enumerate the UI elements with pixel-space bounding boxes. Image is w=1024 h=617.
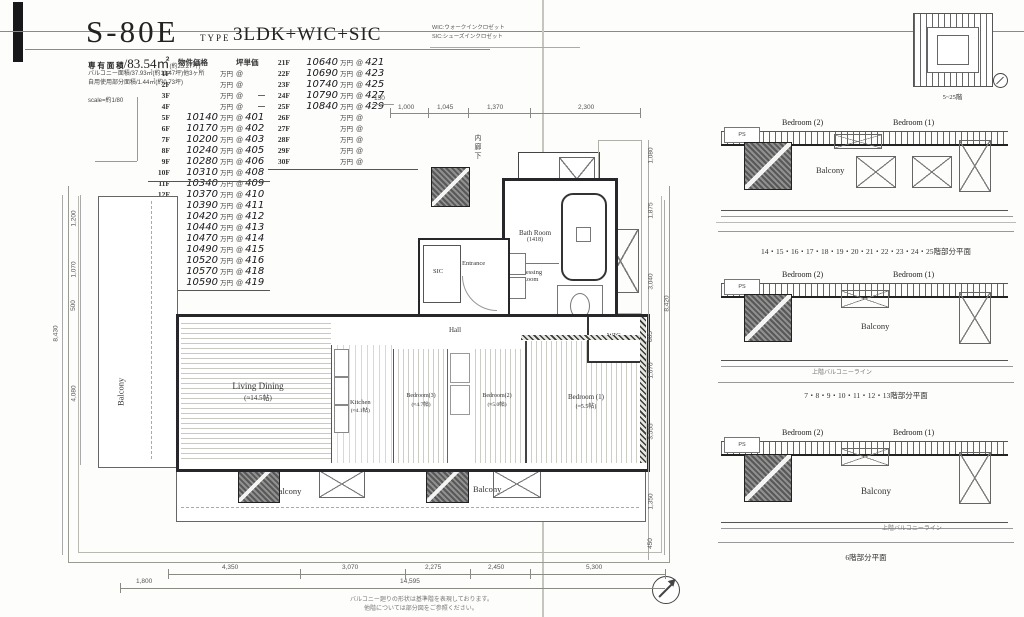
tsubo-value: 408 (245, 167, 264, 178)
column-pillar (744, 142, 792, 190)
price-row: 30F万円@ (268, 156, 384, 167)
price-value: 10840 (294, 101, 338, 112)
floor-label: 23F (268, 80, 290, 89)
legend: WIC:ウォークインクロゼット SIC:シューズインクロゼット (432, 24, 505, 42)
dim-tick (168, 569, 169, 579)
compass-icon (993, 73, 1008, 88)
at-mark: @ (356, 126, 363, 133)
bath-block: Bath Room (1418) Dressing Room (502, 178, 618, 336)
dim-line (80, 195, 81, 465)
dim-label: 1,080 (648, 147, 655, 163)
partial-plan-14-25f: Bedroom (2) Bedroom (1) PS Balcony (716, 118, 1016, 240)
dim-tick (530, 108, 531, 118)
price-unit-suffix: 万円 (220, 167, 233, 177)
dim-label: 1,045 (437, 104, 453, 111)
price-unit-suffix: 万円 (340, 57, 353, 67)
bathtub-icon (561, 193, 607, 281)
dim-label: 3,040 (648, 273, 655, 289)
closet-strip (447, 349, 473, 463)
dim-line (62, 195, 63, 555)
legend-underline (430, 47, 580, 48)
legend-sic: SIC:シューズインクロゼット (432, 33, 505, 42)
louver-box-icon (841, 448, 889, 466)
caption-6f: 6階部分平面 (716, 552, 1016, 563)
floor-label: 7F (148, 135, 170, 144)
dim-line (120, 588, 665, 589)
at-mark: @ (356, 159, 363, 166)
at-mark: @ (236, 115, 243, 122)
title-underline (25, 49, 490, 50)
living-dining-label: Living Dining (≈14.5帖) (203, 381, 313, 402)
dim-label: 450 (647, 538, 654, 549)
price-value: 10790 (294, 90, 338, 101)
dim-label: 3,070 (342, 564, 358, 571)
shaft-x-icon (959, 292, 991, 344)
price-value: 10240 (174, 145, 218, 156)
floor-label: 9F (148, 157, 170, 166)
floor-label: 5F (148, 113, 170, 122)
footnote: バルコニー廻りの形状は基準階を表現しております。 他階については部分図をご参照く… (350, 596, 493, 614)
keyplan-caption: 5~25階 (925, 91, 980, 101)
dim-tick (640, 108, 641, 118)
dim-label: 14,595 (400, 578, 420, 585)
kitchen-counter-icon (334, 349, 349, 377)
kitchen-stove-icon (334, 405, 349, 433)
shaft-x-icon (959, 452, 991, 504)
price-unit-suffix: 万円 (220, 68, 233, 78)
price-unit-suffix: 万円 (220, 134, 233, 144)
planter-box-icon (493, 470, 541, 498)
bedroom2-label: Bedroom(2) (≈5.0帖) (472, 393, 522, 408)
louver-box-icon (841, 290, 889, 308)
ps-box: PS (724, 279, 760, 295)
price-unit-suffix: 万円 (220, 145, 233, 155)
bedroom3-room: Bedroom(3) (≈4.7帖) (393, 349, 448, 463)
dim-tick (530, 569, 531, 579)
dim-tick (665, 569, 666, 579)
price-unit-suffix: 万円 (340, 123, 353, 133)
hall-label: Hall (449, 326, 461, 334)
price-unit-suffix: 万円 (220, 101, 233, 111)
at-mark: @ (356, 60, 363, 67)
dim-label: 1,350 (648, 493, 655, 509)
legend-wic: WIC:ウォークインクロゼット (432, 24, 505, 33)
leader-line-v (137, 97, 138, 161)
dim-label: 1,000 (398, 104, 414, 111)
balcony-edge-line (716, 222, 1016, 223)
dim-label: 8,430 (53, 325, 60, 341)
ps-box: PS (724, 127, 760, 143)
leader-line-h (95, 161, 137, 162)
ps-box: PS (724, 437, 760, 453)
balcony-label: Balcony (861, 486, 891, 496)
price-unit-suffix: 万円 (340, 101, 353, 111)
louver-box-icon (834, 134, 882, 149)
wall-hatch (640, 317, 646, 463)
door-swing-icon (462, 276, 497, 311)
caption-7-13f: 7・8・9・10・11・12・13階部分平面 (716, 390, 1016, 401)
price-value: 10170 (174, 123, 218, 134)
price-row: 25F10840万円@429 (268, 101, 384, 112)
living-dining-room: Living Dining (≈14.5帖) (181, 319, 331, 463)
price-unit-suffix: 万円 (220, 123, 233, 133)
floor-label: 3F (148, 91, 170, 100)
floorplan-sheet: S-80E TYPE 3LDK+WIC+SIC WIC:ウォークインクロゼット … (0, 0, 1024, 617)
price-value: 10640 (294, 57, 338, 68)
at-mark: @ (356, 93, 363, 100)
tsubo-value: 401 (245, 112, 264, 123)
balcony-left-dash (151, 201, 152, 459)
balcony-edge-line (721, 210, 1008, 211)
vanity-icon (508, 253, 526, 275)
compass-icon (652, 576, 680, 604)
floor-label: 21F (268, 58, 290, 67)
price-row: 21F10640万円@421 (268, 57, 384, 68)
at-mark: @ (356, 137, 363, 144)
at-mark: @ (356, 148, 363, 155)
entrance-block: SIC Entrance (418, 238, 510, 320)
at-mark: @ (356, 71, 363, 78)
scale-line: scale=約1/80 (88, 95, 123, 104)
floor-label: 22F (268, 69, 290, 78)
bedroom2-label: Bedroom (2) (782, 118, 823, 127)
entrance-label: Entrance (462, 260, 485, 267)
tsubo-value: 406 (245, 156, 264, 167)
floor-label: 26F (268, 113, 290, 122)
price-unit-suffix: 万円 (220, 79, 233, 89)
price-unit-suffix: 万円 (220, 112, 233, 122)
price-value: 10310 (174, 167, 218, 178)
balcony-edge-line (721, 522, 1008, 523)
dash-25f (258, 106, 265, 107)
price-row: 5F10140万円@401 (148, 112, 264, 123)
kitchen-room: Kitchen (≈4.1帖) (331, 345, 394, 463)
price-unit-suffix: 万円 (220, 90, 233, 100)
bedroom2-room: Bedroom(2) (≈5.0帖) (471, 349, 523, 463)
at-mark: @ (236, 71, 243, 78)
price-row: 29F万円@ (268, 145, 384, 156)
price-header: 物件価格 (178, 57, 208, 68)
price-row: 24F10790万円@427 (268, 90, 384, 101)
price-row: 8F10240万円@405 (148, 145, 264, 156)
compass-needle (996, 76, 1004, 84)
balcony-label: Balcony (816, 166, 844, 176)
at-mark: @ (236, 126, 243, 133)
at-mark: @ (356, 115, 363, 122)
corridor-label: 内廊下 (472, 134, 482, 161)
dim-line (718, 542, 1014, 543)
at-mark: @ (236, 104, 243, 111)
floor-label: 2F (148, 80, 170, 89)
price-value: 10280 (174, 156, 218, 167)
dim-label: 1,800 (136, 578, 152, 585)
at-mark: @ (356, 82, 363, 89)
price-row: 2F万円@ (148, 79, 264, 90)
floor-label: 27F (268, 124, 290, 133)
tsubo-value: 402 (245, 123, 264, 134)
balcony-edge-line (721, 360, 1008, 361)
balcony-edge-line (721, 366, 1013, 367)
wic-room: WIC (587, 317, 645, 363)
price-value: 10740 (294, 79, 338, 90)
balcony-edge-line (721, 216, 1013, 217)
floor-label: 24F (268, 91, 290, 100)
type-label: TYPE (200, 33, 231, 43)
price-row: 26F万円@ (268, 112, 384, 123)
floor-label: 4F (148, 102, 170, 111)
bedroom1-label: Bedroom (1) (893, 428, 934, 437)
price-unit-suffix: 万円 (340, 68, 353, 78)
floor-label: 8F (148, 146, 170, 155)
dim-label: 1,370 (487, 104, 503, 111)
closet-icon (450, 353, 470, 383)
tsubo-header: 坪単価 (236, 57, 259, 68)
dim-tick (468, 108, 469, 118)
washer-icon (508, 277, 526, 299)
dim-label: 2,450 (488, 564, 504, 571)
ac-unit-icon (856, 156, 896, 188)
kitchen-sink-icon (334, 377, 349, 405)
floor-label: 10F (148, 168, 170, 177)
price-row: 9F10280万円@406 (148, 156, 264, 167)
price-row: 23F10740万円@425 (268, 79, 384, 90)
at-mark: @ (236, 159, 243, 166)
at-mark: @ (236, 148, 243, 155)
caption-14-25f: 14・15・16・17・18・19・20・21・22・23・24・25階部分平面 (716, 246, 1016, 257)
tsubo-value: 423 (365, 68, 384, 79)
price-unit-suffix: 万円 (340, 112, 353, 122)
at-mark: @ (236, 137, 243, 144)
price-row: 3F万円@ (148, 90, 264, 101)
dim-label: 3,555 (648, 423, 655, 439)
at-mark: @ (356, 104, 363, 111)
dim-label: 1,070 (71, 261, 78, 277)
price-row: 10F10310万円@408 (148, 167, 264, 178)
dim-label: 1,875 (648, 202, 655, 218)
dim-label: 8,420 (664, 295, 671, 311)
bedroom2-label: Bedroom (2) (782, 428, 823, 437)
dim-label: 4,350 (222, 564, 238, 571)
dim-line (372, 104, 394, 105)
tsubo-value: 403 (245, 134, 264, 145)
closet-icon (450, 385, 470, 415)
kitchen-label: Kitchen (≈4.1帖) (350, 399, 371, 415)
table-rule-30f (268, 169, 418, 170)
at-mark: @ (236, 170, 243, 177)
column-pillar (744, 294, 792, 342)
type-value: 3LDK+WIC+SIC (233, 24, 381, 46)
partial-plan-7-13f: Bedroom (2) Bedroom (1) PS Balcony 上階バルコ… (716, 270, 1016, 388)
tsubo-value: 421 (365, 57, 384, 68)
bedroom1-label: Bedroom (1) (893, 270, 934, 279)
dim-tick (428, 108, 429, 118)
floor-label: 28F (268, 135, 290, 144)
dim-label: 4,080 (71, 385, 78, 401)
dim-label: 500 (70, 300, 77, 311)
at-mark: @ (236, 93, 243, 100)
dim-label: 2,275 (425, 564, 441, 571)
sic-label: SIC (433, 268, 443, 275)
dim-label: 1,200 (71, 210, 78, 226)
price-unit-suffix: 万円 (220, 156, 233, 166)
price-unit-suffix: 万円 (340, 156, 353, 166)
floor-label: 25F (268, 102, 290, 111)
dim-label: 5,300 (586, 564, 602, 571)
price-value: 10200 (174, 134, 218, 145)
price-unit-suffix: 万円 (340, 134, 353, 144)
unit-main-body: Living Dining (≈14.5帖) Kitchen (≈4.1帖) B… (176, 314, 650, 472)
floor-label: 29F (268, 146, 290, 155)
partial-plan-6f: Bedroom (2) Bedroom (1) PS Balcony 上階バルコ… (716, 428, 1016, 550)
ac-unit-icon (912, 156, 952, 188)
dim-line (664, 200, 665, 555)
dim-tick (390, 108, 391, 118)
dim-tick (120, 583, 121, 593)
unit-code: S-80E (86, 14, 179, 50)
price-list-floors-21-30: 21F10640万円@42122F10690万円@42323F10740万円@4… (268, 57, 384, 167)
price-row: 4F万円@ (148, 101, 264, 112)
table-rule-10f (148, 181, 270, 182)
bathroom-label: Bath Room (1418) (509, 229, 561, 244)
hall-area: Hall (393, 319, 525, 345)
tsubo-value: 425 (365, 79, 384, 90)
dim-tick (470, 569, 471, 579)
price-unit-suffix: 万円 (340, 79, 353, 89)
price-row: 7F10200万円@403 (148, 134, 264, 145)
dim-label: 1,070 (648, 362, 655, 378)
bedroom2-label: Bedroom (2) (782, 270, 823, 279)
price-row: 6F10170万円@402 (148, 123, 264, 134)
balcony-left: Balcony (98, 196, 178, 468)
price-value: 10140 (174, 112, 218, 123)
sic-room: SIC (423, 245, 461, 303)
floor-label: 30F (268, 157, 290, 166)
dim-label: 805 (647, 331, 654, 342)
balcony-label: Balcony (861, 322, 889, 332)
bedroom1-label: Bedroom (1) (≈5.5帖) (551, 393, 621, 411)
keyplan-core (937, 35, 969, 65)
column-pillar (744, 454, 792, 502)
dim-line (168, 574, 665, 575)
wall-hatch (521, 335, 645, 340)
dim-tick (300, 569, 301, 579)
key-plan: 5~25階 (885, 5, 1015, 105)
dim-line (718, 382, 1014, 383)
balcony-left-label: Balcony (116, 378, 126, 406)
dim-label: 2,300 (578, 104, 594, 111)
planter-box-icon (319, 470, 365, 498)
balcony-edge-line (721, 528, 1013, 529)
price-unit-suffix: 万円 (340, 90, 353, 100)
floor-label: 6F (148, 124, 170, 133)
bedroom1-label: Bedroom (1) (893, 118, 934, 127)
upper-balcony-note: 上階バルコニーライン (882, 525, 942, 534)
shaft-x-icon (959, 140, 991, 192)
dim-line (718, 231, 1014, 232)
price-row: 28F万円@ (268, 134, 384, 145)
floor-label: 1F (148, 69, 170, 78)
upper-balcony-note: 上階バルコニーライン (812, 369, 872, 378)
price-unit-suffix: 万円 (340, 145, 353, 155)
balcony-bottom-dash (181, 507, 639, 508)
price-row: 27F万円@ (268, 123, 384, 134)
spine-mark (13, 2, 23, 62)
bathtub-seat-icon (576, 227, 591, 242)
tsubo-value: 405 (245, 145, 264, 156)
price-row: 22F10690万円@423 (268, 68, 384, 79)
price-value: 10690 (294, 68, 338, 79)
column-pillar (431, 167, 470, 207)
tsubo-value: 429 (365, 101, 384, 112)
at-mark: @ (236, 82, 243, 89)
bedroom3-label: Bedroom(3) (≈4.7帖) (396, 393, 446, 408)
price-row: 1F万円@ (148, 68, 264, 79)
dim-label: 150 (374, 95, 385, 102)
dash-24f (258, 95, 265, 96)
